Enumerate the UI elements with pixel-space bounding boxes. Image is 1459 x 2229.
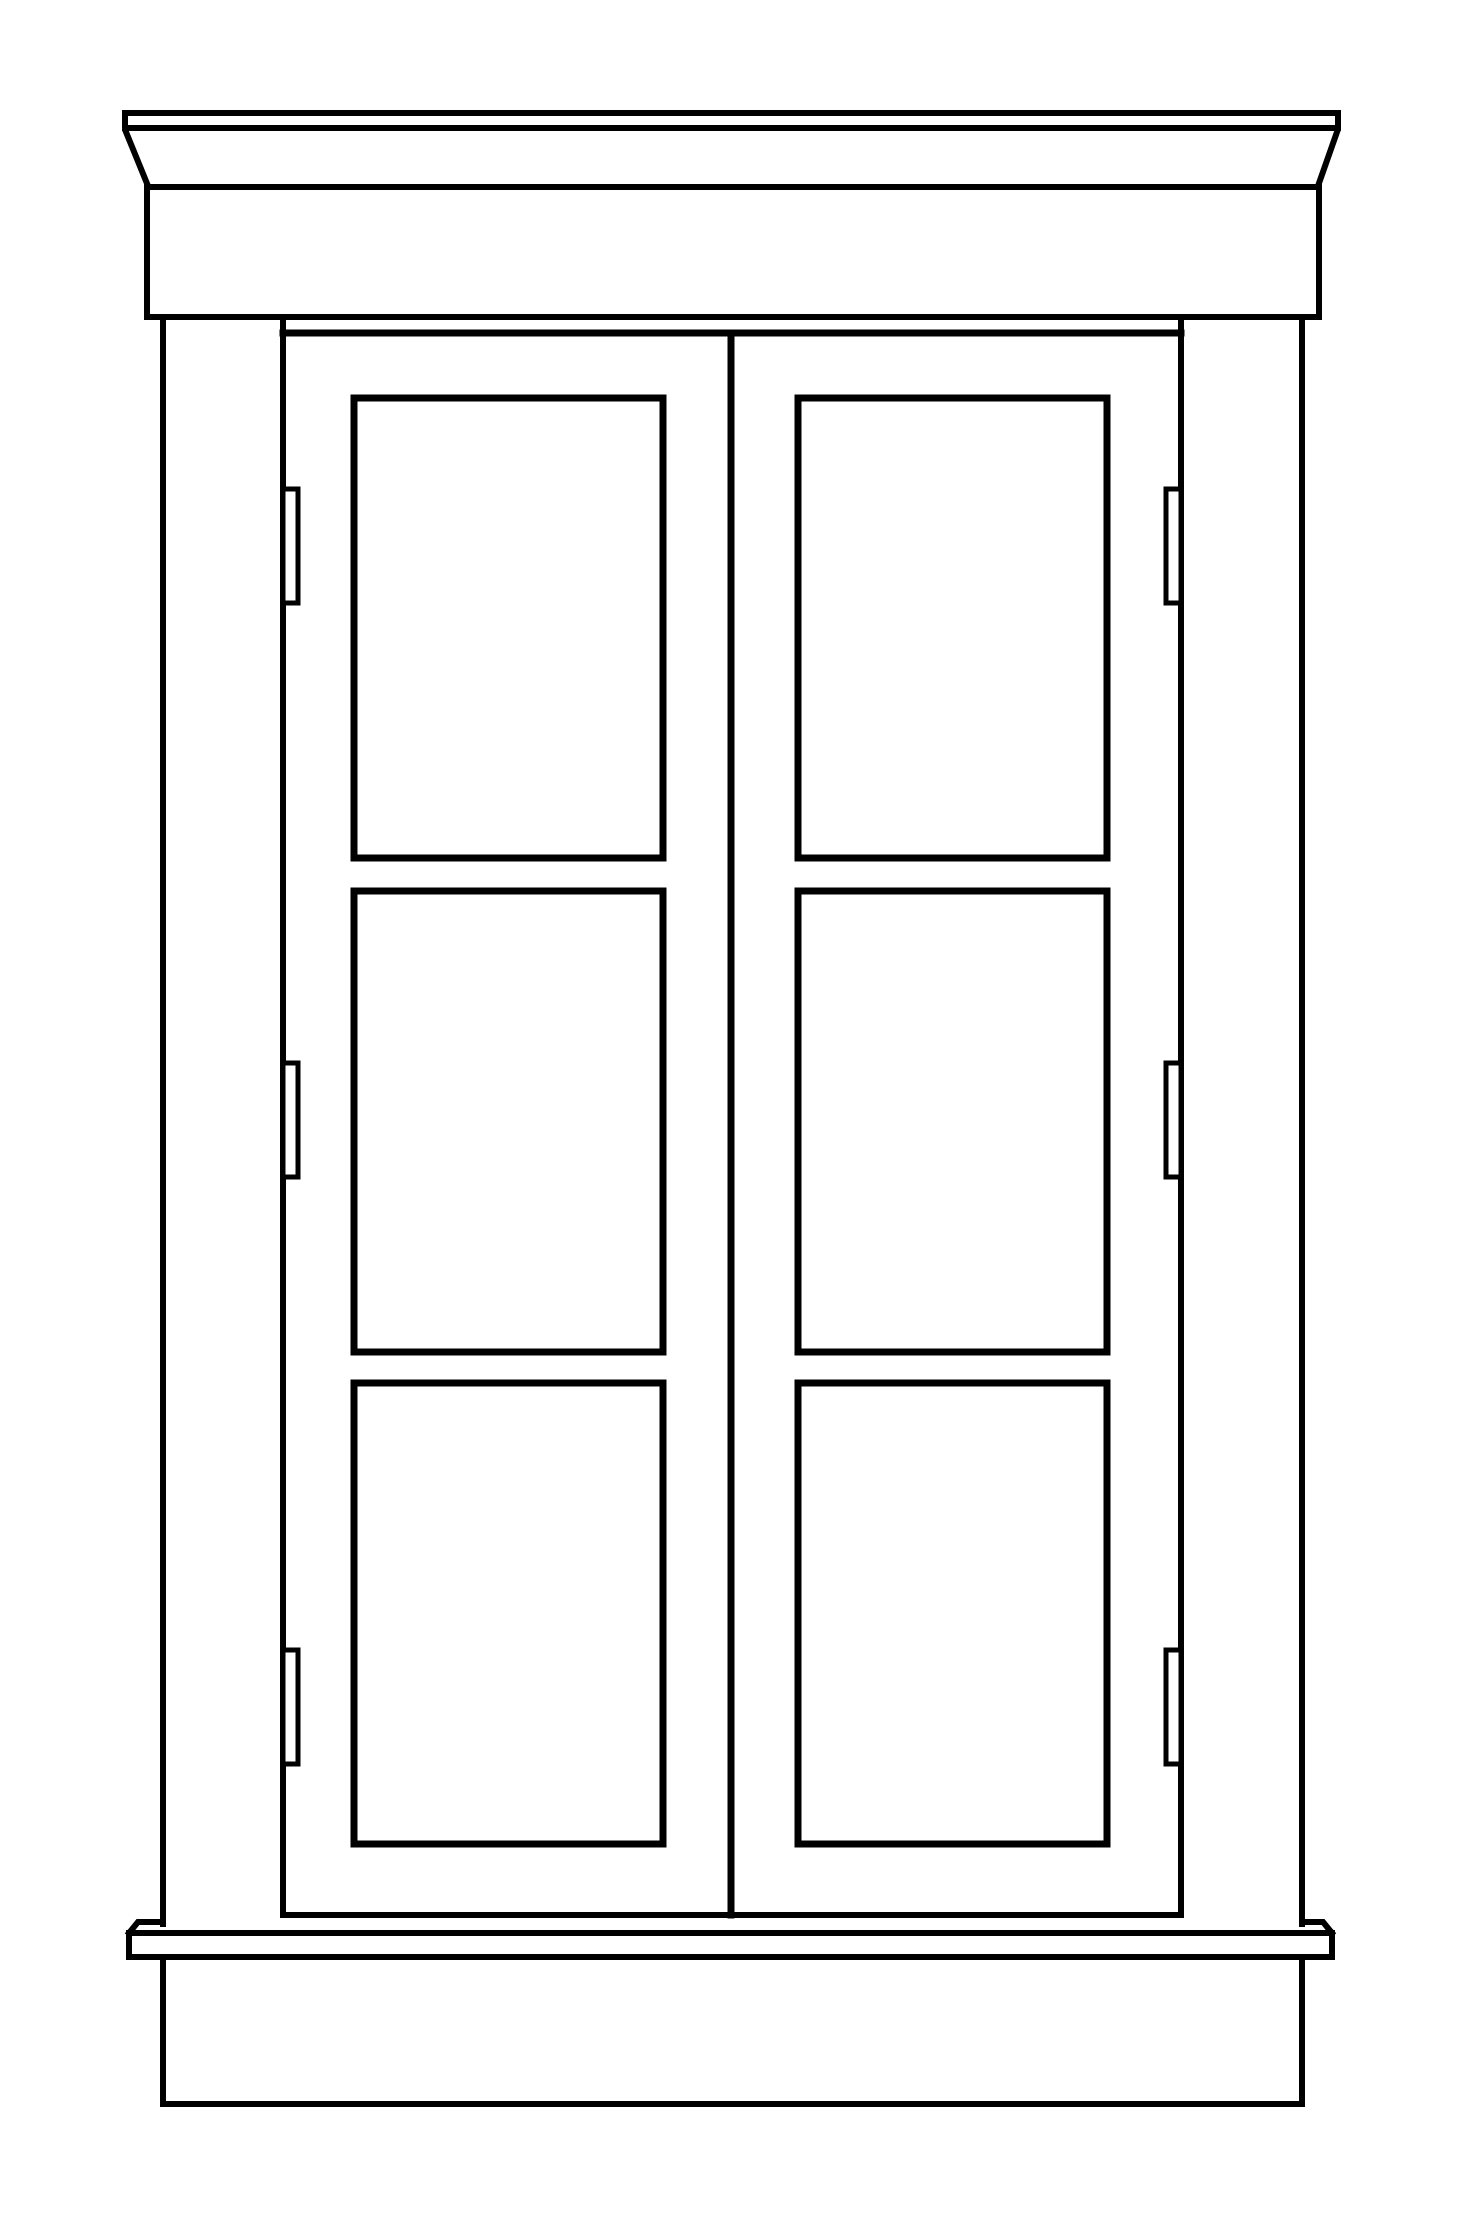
left-door-bottom-panel xyxy=(354,1383,663,1844)
left-top-hinge xyxy=(283,489,298,603)
left-middle-hinge xyxy=(283,1063,298,1177)
left-bottom-hinge xyxy=(283,1650,298,1764)
left-door-top-panel xyxy=(354,398,663,858)
right-door-bottom-panel xyxy=(798,1383,1107,1844)
right-bottom-hinge xyxy=(1166,1650,1181,1764)
cabinet-drawing-page xyxy=(0,0,1459,2229)
crown-right-slant xyxy=(1318,132,1337,186)
right-door-top-panel xyxy=(798,398,1107,858)
right-door-middle-panel xyxy=(798,891,1107,1352)
crown-cap-board xyxy=(125,113,1338,128)
cabinet-line-drawing-svg xyxy=(0,0,1459,2229)
crown-left-slant xyxy=(126,132,148,186)
right-top-hinge xyxy=(1166,489,1181,603)
right-middle-hinge xyxy=(1166,1063,1181,1177)
left-door-middle-panel xyxy=(354,891,663,1352)
